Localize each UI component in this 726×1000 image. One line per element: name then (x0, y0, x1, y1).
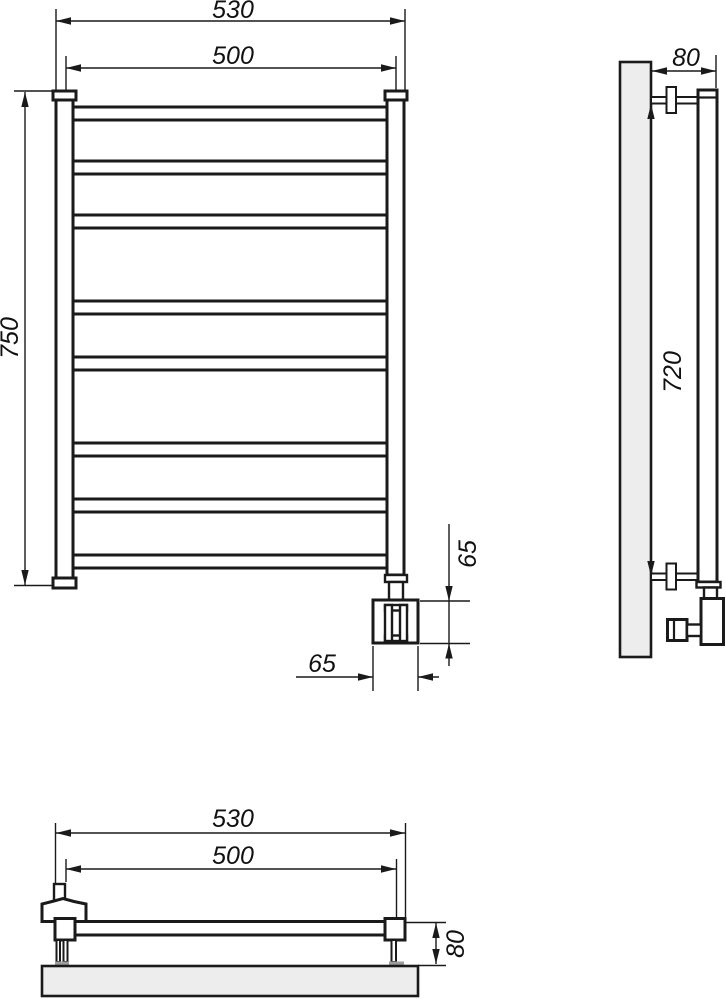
stem (392, 940, 397, 962)
dim-height-label: 750 (0, 317, 24, 359)
arrowhead-left (418, 673, 433, 680)
stem (64, 940, 68, 962)
dim-depth-bottom: 80 (406, 923, 470, 966)
dim-overall-width-bottom-label: 530 (212, 805, 254, 833)
valve-detail-right (400, 605, 407, 641)
arrowhead-left (56, 17, 71, 24)
valve-side (668, 599, 724, 645)
right-bracket-stem (389, 940, 404, 967)
rail-profile (697, 90, 721, 599)
right-rail-section (385, 919, 405, 941)
valve-neck (704, 588, 717, 599)
valve-detail-left (385, 605, 392, 641)
arrowhead-right (358, 673, 373, 680)
dim-valve-height: 65 (420, 524, 482, 666)
arrowhead-up (432, 923, 439, 938)
wall-bracket-top (651, 87, 698, 113)
wall-section (620, 62, 651, 657)
arrowhead-left (652, 67, 667, 74)
technical-drawing-page: 530 500 750 (0, 0, 726, 1000)
dim-height: 750 (0, 91, 54, 586)
arrowhead-right (390, 17, 405, 24)
left-rail-body (56, 100, 73, 578)
valve-body (373, 600, 418, 643)
valve-stem (389, 582, 403, 600)
dim-centers-width-bottom: 500 (66, 842, 397, 917)
dim-centers-width: 500 (66, 42, 396, 90)
rail-tube (698, 90, 717, 582)
arrowhead-down (432, 949, 439, 964)
dim-bracket-span: 720 (647, 104, 687, 576)
arrowhead-down (445, 586, 452, 601)
dim-depth-label: 80 (672, 44, 700, 72)
bracket-flange (667, 87, 677, 113)
wall-bracket-bottom (651, 564, 698, 590)
front-view: 530 500 750 (0, 0, 482, 691)
union-head (668, 620, 688, 641)
left-rail-section (55, 919, 75, 941)
arrowhead-right (390, 829, 405, 836)
dim-valve-width-label: 65 (308, 650, 336, 678)
side-view: 80 720 (620, 44, 724, 657)
rungs (73, 107, 387, 568)
arrowhead-right (381, 64, 396, 71)
bracket-flange (667, 564, 677, 590)
dim-valve-width: 65 (296, 646, 439, 691)
valve-top (42, 884, 86, 922)
arrowhead-left (66, 865, 81, 872)
dim-overall-width-label: 530 (212, 0, 254, 24)
left-rail-bottom-cap (53, 578, 76, 588)
arrowhead-right (701, 67, 716, 74)
union-neck (687, 625, 701, 637)
dim-bracket-span-label: 720 (659, 351, 687, 393)
top-rung-section (75, 922, 385, 936)
right-rail (385, 91, 407, 600)
stem (57, 940, 61, 962)
wall-section-bottom (42, 966, 418, 996)
bottom-view: 530 500 (42, 805, 470, 996)
right-rail-body (387, 100, 404, 575)
arrowhead-bottom (21, 570, 28, 585)
arrowhead-up (445, 644, 452, 659)
left-bracket-stem (55, 940, 69, 967)
arrowhead-left (56, 829, 71, 836)
dim-depth-bottom-label: 80 (442, 930, 470, 958)
dim-valve-height-label: 65 (454, 540, 482, 568)
arrowhead-top (21, 92, 28, 107)
dim-centers-width-label: 500 (212, 42, 254, 70)
valve-housing-side (701, 599, 724, 645)
towel-rail-drawing: 530 500 750 (0, 0, 726, 1000)
dim-depth: 80 (652, 44, 716, 88)
arrowhead-left (66, 64, 81, 71)
arrowhead-right (381, 865, 396, 872)
left-rail (53, 91, 76, 588)
dim-centers-width-bottom-label: 500 (212, 842, 254, 870)
